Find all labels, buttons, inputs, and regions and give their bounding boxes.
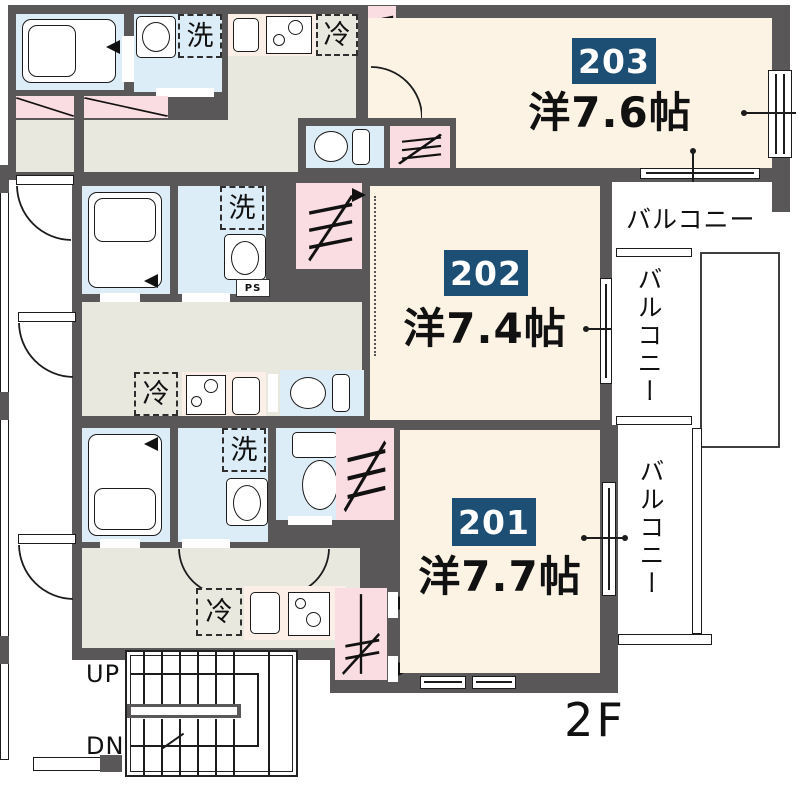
window-line — [775, 74, 777, 154]
door-gap — [268, 374, 278, 412]
door-gap — [288, 516, 332, 525]
stove-burner-icon — [306, 612, 321, 627]
fridge-label: 冷 — [143, 381, 170, 408]
dimension-dot — [690, 148, 696, 154]
stair-step — [215, 652, 217, 706]
stair-step — [197, 719, 199, 775]
toilet-tank-icon — [332, 374, 350, 412]
toilet-bowl-icon — [302, 460, 338, 510]
floor-label: 2F — [540, 693, 650, 749]
washer-space: 洗 — [178, 14, 222, 58]
fridge-space: 冷 — [316, 14, 358, 56]
stair-path — [131, 673, 259, 675]
sliding-door-line — [605, 284, 607, 378]
stairs-up-label: UP — [86, 660, 124, 686]
fridge-label: 冷 — [206, 599, 233, 626]
stair-step — [143, 719, 145, 775]
dimension-mark — [744, 112, 796, 114]
stair-step — [233, 652, 235, 706]
balcony-label: バルコニー — [634, 266, 666, 420]
balcony-label: バルコニー — [636, 458, 668, 610]
balcony-label: バルコニー — [626, 200, 782, 232]
washbasin-bowl-icon — [231, 241, 259, 275]
stair-landing — [131, 707, 237, 715]
closet — [336, 428, 394, 520]
unit-number: 203 — [578, 42, 650, 81]
wall-stub — [0, 636, 9, 664]
kitchen-sink-icon — [250, 592, 280, 634]
stair-step — [161, 652, 163, 706]
window-line — [476, 681, 512, 683]
closet-door-line-icon — [16, 96, 74, 118]
dimension-mark — [584, 537, 624, 539]
entry-door-arc — [16, 185, 72, 241]
fridge-label: 冷 — [324, 22, 351, 49]
balcony-outer-rail — [692, 428, 702, 634]
door-arrow-icon — [352, 188, 366, 202]
window-line — [646, 172, 754, 174]
stair-step — [268, 652, 270, 775]
kitchen-sink-icon — [233, 18, 259, 52]
sliding-door-line — [608, 488, 610, 590]
door-gap — [182, 293, 230, 302]
toilet-tank-icon — [292, 432, 338, 458]
stair-step — [143, 652, 145, 706]
door-gap — [122, 36, 134, 82]
stove-burner-icon — [204, 379, 218, 393]
lower-roof-outline — [700, 252, 780, 448]
stove-burner-icon — [191, 396, 202, 407]
stair-step — [197, 652, 199, 706]
balcony-railing — [616, 416, 692, 425]
closet-hanger-icon — [336, 428, 394, 520]
dimension-dot — [741, 110, 747, 116]
toilet-bowl-icon — [314, 131, 348, 162]
toilet-tank-icon — [352, 129, 370, 165]
bathtub-inner-icon — [94, 198, 156, 242]
unit-size-label: 洋7.4帖 — [360, 304, 610, 356]
window-line — [783, 74, 785, 154]
closet — [16, 96, 74, 118]
fridge-space: 冷 — [196, 588, 242, 636]
door-arrow-icon — [144, 274, 158, 288]
unit-number: 201 — [458, 503, 530, 542]
fridge-space: 冷 — [134, 372, 178, 416]
kitchen-sink-icon — [232, 377, 260, 415]
door-gap — [100, 293, 140, 302]
unit203-hall — [84, 120, 228, 172]
stove-burner-icon — [288, 20, 303, 35]
stove-burner-icon — [273, 34, 285, 46]
door-arrow-icon — [144, 437, 158, 451]
window — [768, 70, 792, 158]
corridor-railing — [0, 172, 9, 760]
stair-step — [233, 719, 235, 775]
wall-stub — [100, 755, 122, 772]
stair-step — [179, 652, 181, 706]
closet-hanger-icon — [390, 126, 450, 168]
closet-door-line-icon — [84, 96, 168, 118]
washer-space: 洗 — [222, 428, 266, 472]
door-gap — [182, 539, 230, 548]
door-arrow-icon — [106, 40, 120, 54]
entry-door-arc — [18, 544, 74, 600]
unit-size-label: 洋7.6帖 — [480, 88, 740, 142]
unit202-room — [370, 186, 600, 420]
balcony-railing — [618, 634, 712, 645]
wall-stub — [0, 165, 9, 193]
door-gap — [100, 539, 140, 548]
entry-door-leaf — [18, 312, 76, 322]
bathtub-inner-icon — [28, 25, 76, 77]
door-arc — [370, 66, 422, 118]
pipe-space: PS — [236, 279, 270, 297]
unit203-hall — [16, 120, 74, 172]
unit-size-label: 洋7.7帖 — [368, 552, 632, 608]
entry-door-leaf — [16, 175, 74, 185]
entry-door-leaf — [18, 534, 76, 544]
washbasin-bowl-icon — [233, 485, 261, 521]
wall-stub — [0, 392, 9, 420]
unit-badge: 201 — [452, 498, 536, 546]
dimension-dot — [622, 535, 628, 541]
bathtub-inner-icon — [94, 488, 156, 530]
unit-badge: 203 — [572, 38, 656, 84]
unit-number: 202 — [450, 254, 522, 293]
closet — [84, 96, 168, 118]
balcony-railing — [616, 248, 692, 257]
stair-path — [257, 673, 259, 747]
washer-label: 洗 — [187, 23, 214, 50]
washbasin-bowl-icon — [142, 22, 170, 52]
stair-step — [179, 719, 181, 775]
stair-path — [131, 745, 259, 747]
dimension-dot — [581, 535, 587, 541]
window-line — [424, 681, 462, 683]
stove-burner-icon — [295, 598, 306, 609]
floor-plan: 洗 冷 203 洋7.6帖 洗 PS — [0, 0, 800, 787]
pipe-space-label: PS — [245, 283, 262, 294]
washer-label: 洗 — [231, 437, 258, 464]
closet — [390, 126, 450, 168]
unit-badge: 202 — [444, 250, 528, 296]
stair-step — [215, 719, 217, 775]
toilet-bowl-icon — [290, 377, 326, 409]
entry-door-arc — [18, 322, 74, 378]
washer-label: 洗 — [229, 195, 256, 222]
door-gap — [388, 656, 398, 682]
dimension-dot — [583, 326, 589, 332]
washer-space: 洗 — [220, 186, 264, 230]
